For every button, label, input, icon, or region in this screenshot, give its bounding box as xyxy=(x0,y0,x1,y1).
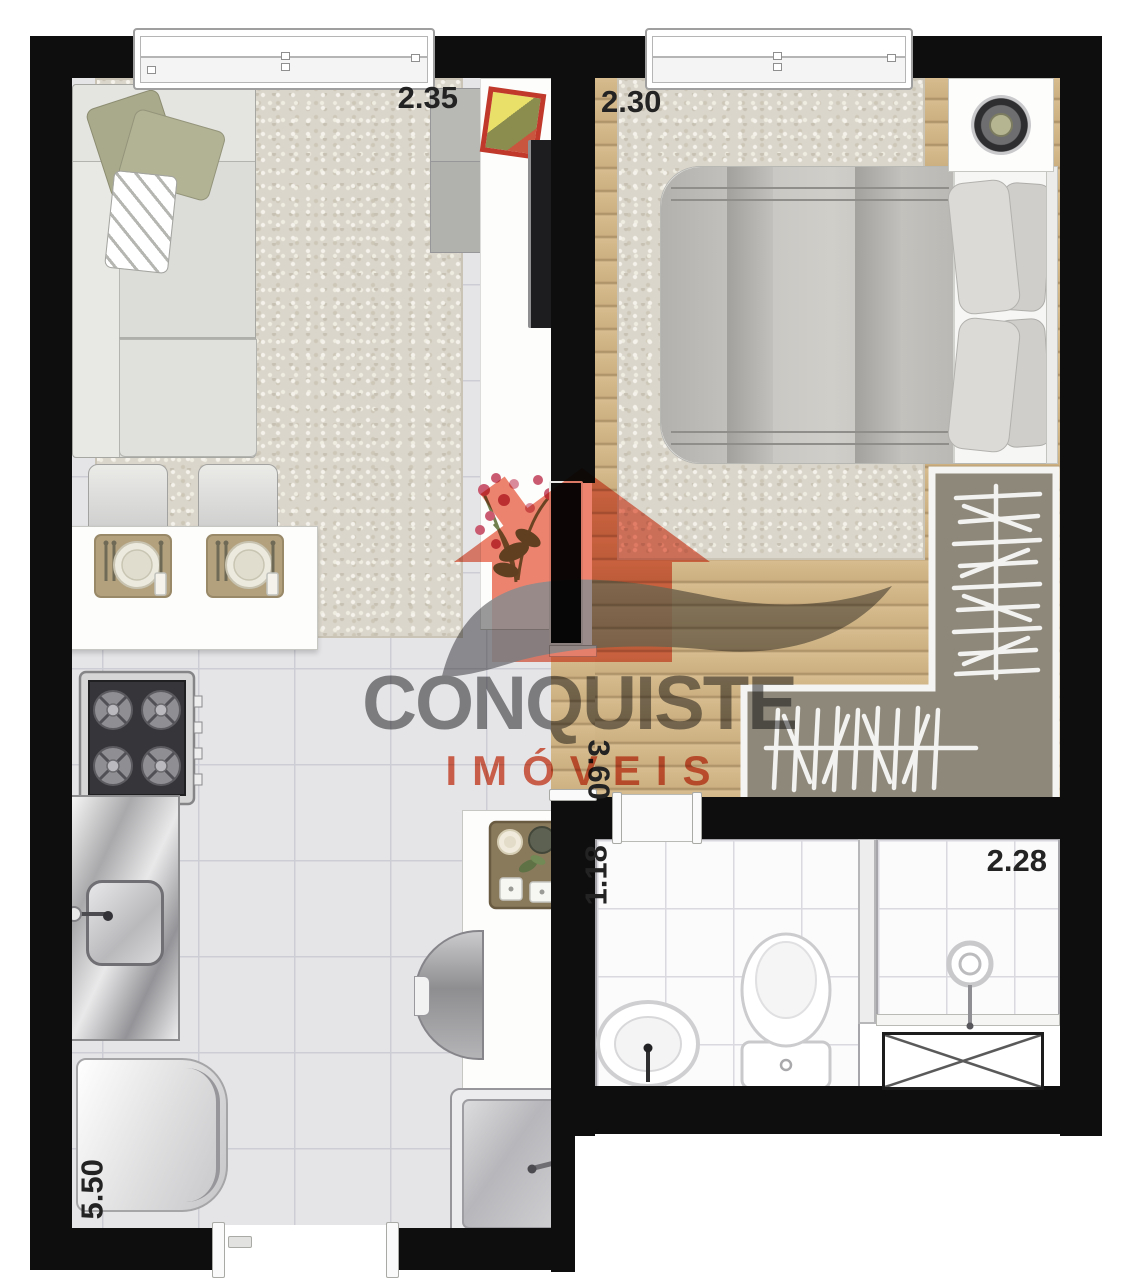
washing-machine-notch xyxy=(414,976,430,1016)
crossed-box-x xyxy=(885,1035,1041,1087)
window-handle xyxy=(147,66,156,74)
window-handle xyxy=(887,54,896,62)
shower-window-box xyxy=(882,1032,1044,1090)
window-handle xyxy=(773,52,782,60)
window-handle xyxy=(281,52,290,60)
place-settings xyxy=(69,527,319,651)
wall-center-step xyxy=(551,1132,575,1272)
sofa-chaise xyxy=(119,339,257,457)
blanket-stitch-top xyxy=(671,187,949,201)
double-bed xyxy=(660,166,1050,464)
measurement-living-width: 2.35 xyxy=(386,82,458,113)
window-handle xyxy=(411,54,420,62)
measurement-bathroom-width: 1.18 xyxy=(581,834,612,906)
bathroom-door-jamb-right xyxy=(692,792,702,844)
floor-plan: 2.35 2.30 3.60 1.18 2.28 5.50 CONQUISTE … xyxy=(0,0,1131,1280)
dining-counter xyxy=(68,526,318,650)
blanket-stitch-bottom xyxy=(671,431,949,445)
bed-headboard xyxy=(1046,166,1058,464)
dining-chair-2 xyxy=(198,464,278,532)
measurement-bedroom-length: 3.60 xyxy=(584,740,615,812)
wall-center-upper xyxy=(551,78,595,483)
refrigerator-door-edge xyxy=(186,1068,220,1202)
wall-bottom-center xyxy=(392,1228,575,1270)
blanket-fold-1 xyxy=(727,167,773,463)
measurement-bedroom-width: 2.30 xyxy=(601,86,661,117)
toilet xyxy=(742,934,830,1088)
window-handle xyxy=(281,63,290,71)
wall-bathroom-bottom xyxy=(592,1086,1062,1134)
wall-bottom-left xyxy=(30,1228,218,1270)
blanket-fold-2 xyxy=(855,167,901,463)
nightstand xyxy=(948,78,1054,172)
entry-jamb-left xyxy=(212,1222,225,1278)
wall-left xyxy=(30,36,72,1270)
entry-jamb-right xyxy=(386,1222,399,1278)
measurement-shower-width: 2.28 xyxy=(975,845,1047,876)
bedroom-door-threshold xyxy=(549,645,597,657)
living-room-window xyxy=(133,28,435,90)
stove-cooktop xyxy=(78,670,204,806)
bathroom-door-opening xyxy=(618,794,696,842)
kitchen-faucet xyxy=(64,897,120,933)
bedroom-door-leaf xyxy=(549,481,583,645)
shower-head xyxy=(949,943,991,1030)
table-lamp-shade-center xyxy=(989,113,1013,137)
wardrobe-closet xyxy=(740,466,1062,806)
bathroom-sink xyxy=(598,1002,698,1086)
kitchen-counter xyxy=(68,795,180,1041)
bed-blanket xyxy=(661,167,955,463)
entry-door-hinge xyxy=(228,1236,252,1248)
sofa xyxy=(72,84,256,458)
entry-door-opening xyxy=(218,1225,392,1273)
laundry-sink xyxy=(450,1088,566,1238)
tv-cabinet-lower xyxy=(430,161,482,253)
dining-chair-1 xyxy=(88,464,168,532)
measurement-apartment-length: 5.50 xyxy=(77,1140,108,1220)
window-handle xyxy=(773,63,782,71)
wall-right xyxy=(1060,36,1102,1136)
bedroom-window xyxy=(645,28,913,90)
chevron-pillow xyxy=(104,170,178,274)
